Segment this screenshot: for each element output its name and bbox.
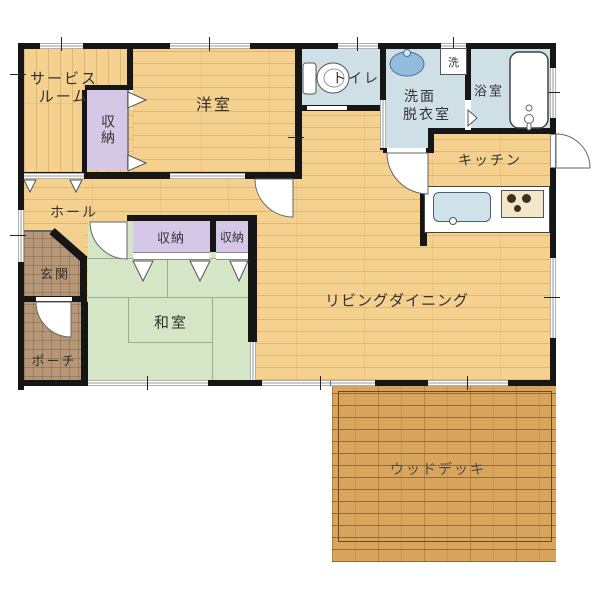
room-label-japanese-room: 和室 <box>154 312 188 333</box>
washroom-sliding-door <box>380 100 386 148</box>
room-label-washroom-2: 脱衣室 <box>403 104 451 124</box>
window-symbol <box>170 43 250 49</box>
dimension-tick <box>61 37 62 51</box>
window-symbol <box>550 68 556 118</box>
room-label-porch: ポーチ <box>31 351 76 370</box>
room-label-wood-deck: ウッドデッキ <box>390 459 486 479</box>
tatami-line <box>167 258 168 298</box>
closet-2-door <box>216 252 248 260</box>
entrance-door-opening <box>36 297 72 301</box>
dimension-tick <box>288 137 304 138</box>
window-mullion <box>330 381 331 386</box>
window-symbol <box>262 380 375 386</box>
dimension-tick <box>147 376 148 390</box>
room-label-closet-2: 収納 <box>220 229 244 246</box>
entrance-step-line <box>24 230 56 232</box>
room-label-washroom: 洗面 <box>404 86 436 106</box>
room-label-service-closet: 収納 <box>97 114 117 146</box>
room-label-service-room-2: ルーム <box>39 86 90 107</box>
room-label-kitchen: キッチン <box>458 150 522 170</box>
dimension-tick <box>209 37 210 51</box>
dimension-tick <box>10 74 26 75</box>
room-label-western-room: 洋室 <box>196 91 232 115</box>
room-label-bathroom: 浴室 <box>474 81 504 100</box>
floor-plan: 洗 <box>0 0 600 600</box>
washer-pan-label: 洗 <box>448 54 459 70</box>
western-room-sliding-door <box>170 173 245 179</box>
window-symbol <box>428 380 508 386</box>
bathroom-door-opening <box>465 100 471 130</box>
kitchen-sink-icon <box>433 192 491 222</box>
wall-japanese-room-right <box>248 215 257 342</box>
washroom-kitchen-opening <box>387 148 426 153</box>
stove-burner-icon <box>507 194 516 203</box>
service-closet-door <box>127 90 129 170</box>
window-symbol <box>550 258 556 338</box>
stove-burner-icon <box>522 194 531 203</box>
room-label-hall: ホール <box>50 202 98 222</box>
kitchen-back-door <box>550 134 556 168</box>
window-symbol <box>18 210 24 262</box>
wall-porch-right <box>81 302 88 386</box>
wall-washbath-bottom <box>428 128 556 134</box>
closet-1-door <box>133 252 210 260</box>
wall-top <box>18 43 556 49</box>
washer-pan-icon: 洗 <box>440 48 467 75</box>
tatami-line <box>128 297 129 343</box>
wall-closet-divider <box>210 221 216 252</box>
room-label-living-dining: リビングダイニング <box>325 290 469 311</box>
porch-floor <box>24 302 81 386</box>
window-symbol <box>338 43 378 49</box>
tatami-line <box>88 297 250 298</box>
toilet-door-opening <box>307 106 347 110</box>
room-label-entrance: 玄関 <box>40 264 70 283</box>
wall-service-western <box>127 49 133 88</box>
stove-burner-icon <box>514 205 521 212</box>
dimension-tick <box>10 235 26 236</box>
tatami-line <box>212 297 213 380</box>
dimension-tick <box>467 376 468 390</box>
japanese-room-sliding-door <box>250 342 256 380</box>
service-room-opening <box>24 173 84 179</box>
tatami-line <box>128 342 213 343</box>
room-label-toilet: トイレ <box>332 68 380 88</box>
dimension-tick <box>357 37 358 51</box>
door-swing-arc-kitchen-back-door <box>556 134 590 168</box>
window-symbol <box>88 380 208 386</box>
dimension-tick <box>320 376 321 390</box>
dimension-tick <box>544 297 560 298</box>
wall-closets-top <box>127 215 257 221</box>
kitchen-tap-icon <box>449 217 457 225</box>
dimension-tick <box>544 92 560 93</box>
room-label-closet-1: 収納 <box>157 228 185 247</box>
wall-western-right <box>295 49 302 179</box>
